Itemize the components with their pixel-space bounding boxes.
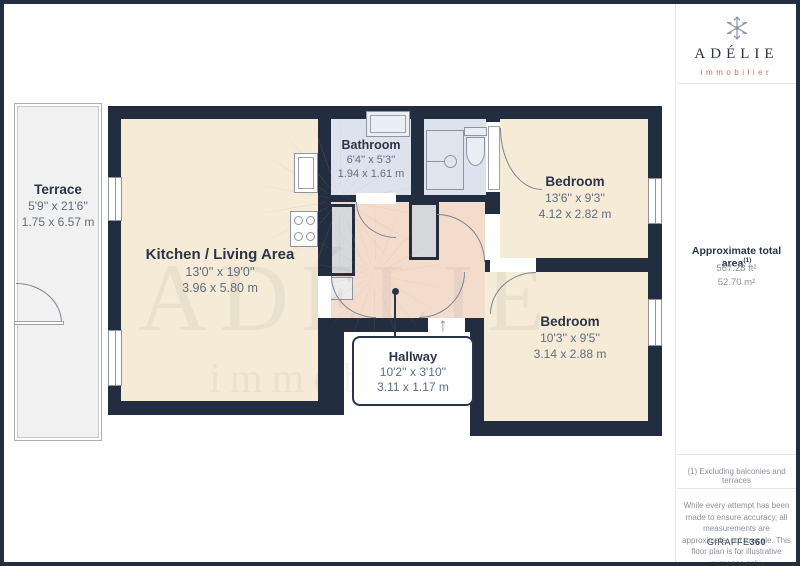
kitchen-door-opening	[318, 276, 331, 318]
room-size-imperial: 5'9'' x 21'6''	[16, 199, 100, 213]
room-name: Bedroom	[505, 174, 645, 189]
room-size-metric: 4.12 x 2.82 m	[505, 207, 645, 221]
hallway-callout-line	[394, 294, 396, 338]
sidebar-divider-footnote-bottom	[677, 488, 797, 489]
snowflake-icon	[724, 15, 750, 41]
total-area-ft: 567.28 ft²	[678, 263, 795, 274]
stove	[290, 211, 318, 247]
window-terrace-door	[108, 330, 122, 386]
disclaimer-text: While every attempt has been made to ens…	[682, 500, 791, 566]
room-size-metric: 1.75 x 6.57 m	[16, 215, 100, 229]
hallway-label-box: Hallway 10'2'' x 3'10'' 3.11 x 1.17 m	[352, 336, 474, 406]
room-terrace	[14, 103, 102, 441]
room-size-metric: 3.14 x 2.88 m	[495, 347, 645, 361]
floorplan-page: ADÉLIE immobilier ↑	[0, 0, 800, 566]
sidebar-divider-top	[677, 83, 797, 84]
bedroom-1-label: Bedroom 13'6'' x 9'3'' 4.12 x 2.82 m	[505, 174, 645, 221]
room-size-imperial: 6'4'' x 5'3''	[324, 154, 418, 166]
window-terrace-upper	[108, 177, 122, 221]
shower	[426, 130, 464, 190]
bedroom-1-door-opening	[485, 214, 500, 260]
total-area-m: 52.70 m²	[678, 277, 795, 288]
toilet-bowl	[466, 137, 485, 166]
area-footnote: (1) Excluding balconies and terraces	[678, 467, 795, 485]
bedroom-2-door-opening	[490, 258, 536, 272]
room-name: Bedroom	[495, 314, 645, 329]
kitchen-label: Kitchen / Living Area 13'0'' x 19'0'' 3.…	[125, 246, 315, 295]
ensuite-door-leaf	[488, 126, 500, 190]
giraffe360-logo: GIRAFFE360	[678, 537, 795, 547]
room-size-imperial: 10'2'' x 3'10''	[354, 365, 472, 379]
sidebar-divider-footnote-top	[677, 454, 797, 455]
room-name: Bathroom	[324, 138, 418, 152]
terrace-door-leaf	[14, 321, 64, 325]
bathroom-label: Bathroom 6'4'' x 5'3'' 1.94 x 1.61 m	[324, 138, 418, 180]
room-size-metric: 3.11 x 1.17 m	[354, 380, 472, 394]
room-size-metric: 3.96 x 5.80 m	[125, 281, 315, 295]
sidebar: ADÉLIE immobilier Approximate total area…	[676, 0, 797, 566]
room-size-imperial: 10'3'' x 9'5''	[495, 331, 645, 345]
bedroom-2-label: Bedroom 10'3'' x 9'5'' 3.14 x 2.88 m	[495, 314, 645, 361]
room-size-imperial: 13'6'' x 9'3''	[505, 191, 645, 205]
toilet-tank	[464, 127, 487, 136]
terrace-label: Terrace 5'9'' x 21'6'' 1.75 x 6.57 m	[16, 182, 100, 229]
room-name: Terrace	[16, 182, 100, 197]
washbasin	[366, 111, 410, 137]
window-bedroom-2	[648, 299, 662, 346]
brand-tagline: immobilier	[676, 68, 797, 77]
brand-name: ADÉLIE	[676, 46, 797, 63]
floorplan-canvas: ADÉLIE immobilier ↑	[0, 0, 676, 566]
brand-watermark-tagline: immobilier	[160, 355, 535, 403]
kitchen-sink	[294, 153, 318, 193]
room-name: Kitchen / Living Area	[125, 246, 315, 263]
entry-arrow-icon: ↑	[438, 316, 448, 335]
room-size-metric: 1.94 x 1.61 m	[324, 168, 418, 180]
window-bedroom-1	[648, 178, 662, 224]
room-size-imperial: 13'0'' x 19'0''	[125, 265, 315, 279]
room-name: Hallway	[354, 349, 472, 364]
